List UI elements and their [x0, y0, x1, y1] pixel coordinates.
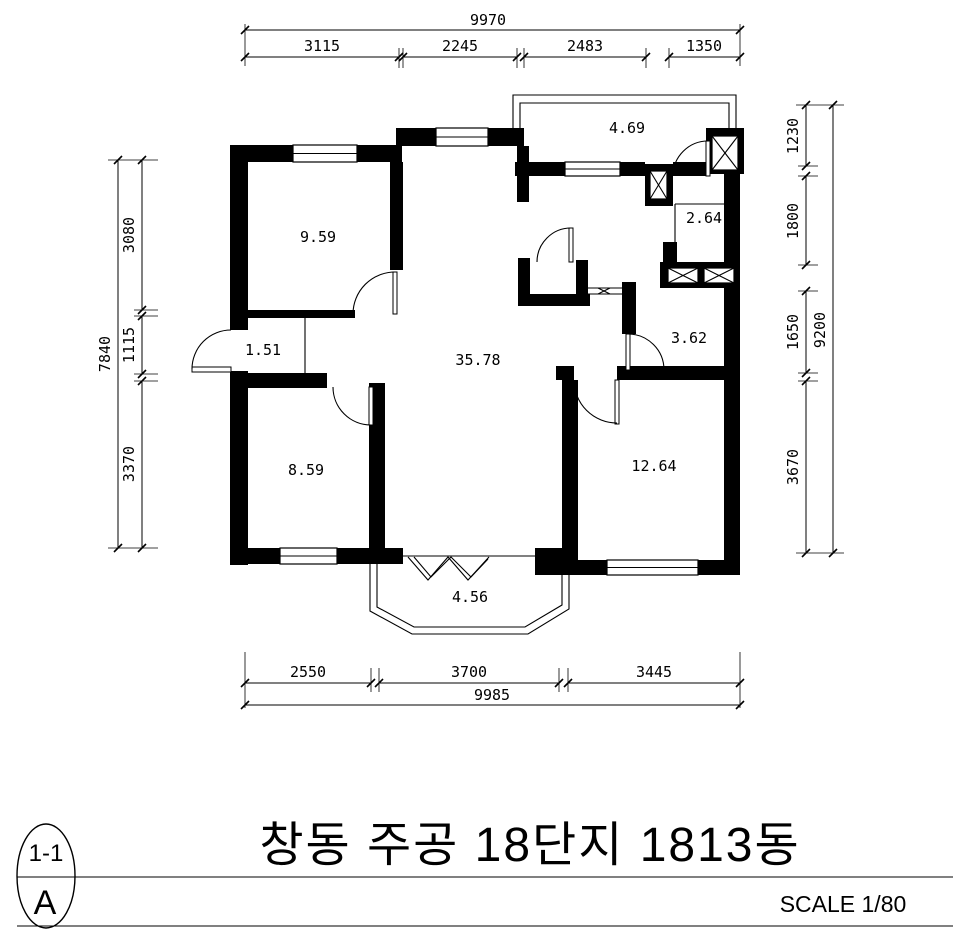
window-bottom-left: [280, 548, 337, 564]
window-bottom-right: [607, 560, 698, 575]
dim-left-total: 7840: [96, 336, 114, 372]
dim-right-seg-4: 3670: [784, 449, 802, 485]
dim-left-seg-3: 3370: [120, 446, 138, 482]
title-block: 1-1 A 창동 주공 18단지 1813동 SCALE 1/80: [17, 819, 953, 928]
dim-top-seg-2: 2245: [442, 37, 478, 55]
shaft-box-left: [668, 268, 698, 283]
scale-label: SCALE 1/80: [780, 891, 907, 917]
dim-bottom-seg-1: 2550: [290, 663, 326, 681]
dim-top-seg-1: 3115: [304, 37, 340, 55]
door-3-62: [626, 334, 664, 370]
door-8-59: [333, 387, 373, 425]
door-closet: [537, 228, 573, 262]
threshold-kitchen: [585, 288, 624, 294]
dim-top-total: 9970: [470, 11, 506, 29]
room-label-living: 35.78: [455, 351, 500, 369]
dim-right-total: 9200: [811, 312, 829, 348]
floor-plan-drawing: 9.59 4.69 2.64 1.51 35.78 3.62 8.59 12.6…: [0, 0, 953, 929]
room-label-entry: 1.51: [245, 341, 281, 359]
window-top-left: [293, 145, 357, 162]
entrance-door: [192, 330, 231, 372]
dim-top: 9970 3115 2245 2483 1350: [241, 11, 744, 68]
dim-right: 9200 1230 1800 1650 3670: [784, 101, 844, 557]
door-9-59: [353, 272, 397, 314]
dim-top-seg-4: 1350: [686, 37, 722, 55]
dim-right-seg-1: 1230: [784, 118, 802, 154]
dim-left-seg-1: 3080: [120, 217, 138, 253]
dim-right-seg-3: 1650: [784, 314, 802, 350]
shaft-box-small: [650, 171, 667, 199]
window-top-middle: [436, 128, 488, 146]
drawing-title: 창동 주공 18단지 1813동: [259, 819, 800, 872]
dim-top-seg-3: 2483: [567, 37, 603, 55]
room-label-bath-right: 2.64: [686, 209, 722, 227]
interior-lines: [305, 204, 724, 373]
detail-marker-bottom: A: [34, 884, 57, 922]
dim-bottom-seg-3: 3445: [636, 663, 672, 681]
room-label-balcony-bottom: 4.56: [452, 588, 488, 606]
dim-left-seg-2: 1115: [120, 327, 138, 363]
floor-plan-sheet: 9.59 4.69 2.64 1.51 35.78 3.62 8.59 12.6…: [0, 0, 953, 929]
room-label-bath-mid: 3.62: [671, 329, 707, 347]
room-label-bedroom-bottom-right: 12.64: [631, 457, 676, 475]
accordion-door-zigzag: [408, 557, 489, 580]
window-balcony-top: [565, 162, 620, 176]
room-label-bedroom-top-left: 9.59: [300, 228, 336, 246]
dim-bottom: 2550 3700 3445 9985: [241, 652, 744, 709]
dim-right-seg-2: 1800: [784, 203, 802, 239]
shaft-box-corner: [712, 136, 738, 170]
dim-bottom-total: 9985: [474, 686, 510, 704]
door-12-64: [574, 380, 619, 424]
dim-left: 7840 3080 1115 3370: [96, 156, 158, 552]
room-label-balcony-top: 4.69: [609, 119, 645, 137]
detail-marker-top: 1-1: [29, 840, 64, 867]
shaft-box-right: [704, 268, 734, 283]
dim-bottom-seg-2: 3700: [451, 663, 487, 681]
room-label-bedroom-bottom-left: 8.59: [288, 461, 324, 479]
